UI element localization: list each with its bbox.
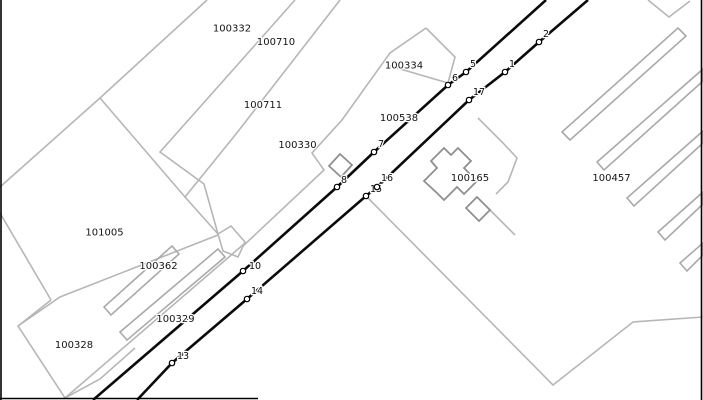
parcel-label: 100329 [156, 314, 194, 325]
parcel-label: 101005 [85, 228, 123, 239]
parcel-label: 100334 [385, 61, 423, 72]
strip-structure [627, 131, 703, 206]
strip-structure [680, 243, 703, 271]
route-b [137, 0, 588, 400]
station-number: 1 [509, 59, 515, 70]
parcel-boundary [368, 198, 703, 385]
strip-structure [658, 192, 703, 240]
station-number: 6 [452, 73, 458, 84]
station-number: 2 [543, 29, 549, 40]
station-marker[interactable] [334, 184, 339, 189]
station-marker[interactable] [169, 360, 174, 365]
building-outline [329, 154, 352, 177]
parcel-boundary [218, 226, 245, 257]
parcel-label: 100165 [451, 173, 489, 184]
parcel-boundary [160, 0, 295, 234]
station-marker[interactable] [445, 82, 450, 87]
map-canvas[interactable]: 1087651314151617121003321007101007111003… [0, 0, 703, 400]
station-marker[interactable] [371, 149, 376, 154]
route-a [93, 0, 546, 400]
parcel-label: 100457 [592, 173, 630, 184]
station-marker[interactable] [466, 97, 471, 102]
station-number: 16 [381, 173, 393, 184]
station-number: 10 [249, 261, 261, 272]
station-marker[interactable] [502, 69, 507, 74]
station-marker[interactable] [363, 193, 368, 198]
station-number: 5 [470, 59, 476, 70]
parcel-label: 100538 [380, 113, 418, 124]
parcel-label: 100332 [213, 24, 251, 35]
station-marker[interactable] [240, 268, 245, 273]
parcel-boundary [490, 210, 515, 235]
station-number: 13 [177, 351, 189, 362]
parcel-label: 100711 [244, 100, 282, 111]
station-number: 7 [378, 139, 384, 150]
station-marker[interactable] [244, 296, 249, 301]
map-viewport: 1087651314151617121003321007101007111003… [0, 0, 703, 400]
parcel-boundary [426, 28, 455, 83]
station-number: 8 [341, 175, 347, 186]
parcel-label: 100330 [278, 140, 316, 151]
station-marker[interactable] [463, 69, 468, 74]
station-marker[interactable] [536, 39, 541, 44]
station-number: 17 [473, 87, 485, 98]
parcel-label: 100328 [55, 340, 93, 351]
strip-structure [562, 28, 686, 140]
parcel-boundary [0, 213, 51, 300]
strip-structure [597, 69, 703, 170]
parcel-boundary [100, 98, 218, 234]
station-number: 14 [251, 286, 263, 297]
station-marker[interactable] [374, 184, 379, 189]
building-outline [466, 197, 490, 221]
parcel-label: 100362 [139, 261, 177, 272]
parcel-boundary [0, 0, 207, 187]
parcel-label: 100710 [257, 37, 295, 48]
parcel-boundary [648, 0, 690, 17]
parcel-boundary [18, 235, 218, 326]
